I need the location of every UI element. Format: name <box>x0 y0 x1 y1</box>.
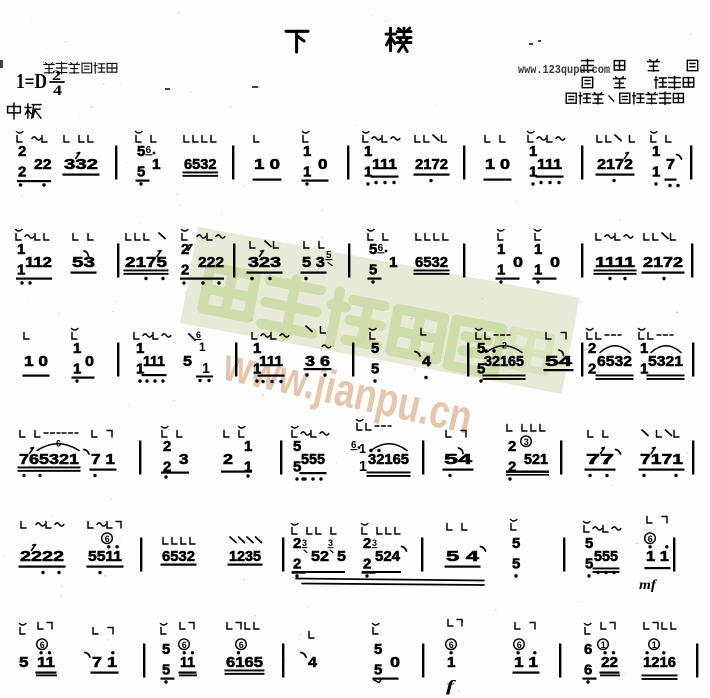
svg-text:1: 1 <box>652 640 657 650</box>
svg-text:222: 222 <box>198 254 224 271</box>
svg-text:5 4: 5 4 <box>446 548 480 565</box>
svg-text:7: 7 <box>666 156 675 173</box>
svg-text:1: 1 <box>303 143 312 160</box>
svg-text:1: 1 <box>303 164 312 181</box>
svg-text:524: 524 <box>375 548 401 565</box>
svg-text:6: 6 <box>56 439 61 449</box>
svg-text:0: 0 <box>550 254 560 271</box>
svg-text:2: 2 <box>588 340 596 357</box>
svg-text:521: 521 <box>524 451 549 468</box>
svg-text:6: 6 <box>182 640 187 650</box>
svg-text:5: 5 <box>162 641 171 658</box>
svg-text:5: 5 <box>19 654 29 671</box>
svg-text:5: 5 <box>369 241 378 258</box>
svg-text:54: 54 <box>545 353 573 370</box>
svg-text:0: 0 <box>318 156 328 173</box>
svg-text:2: 2 <box>18 164 26 181</box>
svg-text:332: 332 <box>64 156 98 173</box>
svg-text:6: 6 <box>584 641 592 658</box>
svg-text:1: 1 <box>244 459 253 476</box>
svg-text:1: 1 <box>447 654 456 671</box>
svg-text:2172: 2172 <box>643 254 683 271</box>
svg-text:6: 6 <box>517 640 522 650</box>
svg-text:555: 555 <box>594 548 619 565</box>
svg-text:3: 3 <box>524 437 529 447</box>
svg-text:1 1: 1 1 <box>646 548 670 565</box>
svg-text:1: 1 <box>497 241 506 258</box>
svg-text:1: 1 <box>244 438 253 455</box>
svg-text:4: 4 <box>308 654 318 671</box>
svg-text:5: 5 <box>512 535 521 552</box>
svg-text:2172: 2172 <box>597 156 633 173</box>
svg-text:54: 54 <box>444 451 473 468</box>
svg-text:1 0: 1 0 <box>24 353 48 370</box>
svg-text:1: 1 <box>152 156 161 173</box>
svg-text:6532: 6532 <box>162 548 195 565</box>
svg-text:6: 6 <box>648 534 653 544</box>
svg-text:6532: 6532 <box>415 254 448 271</box>
svg-text:2: 2 <box>363 556 371 573</box>
svg-text:5: 5 <box>585 535 594 552</box>
svg-text:6: 6 <box>584 662 592 679</box>
svg-text:111: 111 <box>537 156 563 173</box>
svg-text:6: 6 <box>239 640 244 650</box>
svg-text:1: 1 <box>73 361 82 378</box>
svg-text:1 1: 1 1 <box>514 654 539 671</box>
svg-text:1: 1 <box>534 262 543 279</box>
svg-text:4: 4 <box>53 83 63 99</box>
svg-text:5: 5 <box>371 340 380 357</box>
svg-text:mf: mf <box>639 578 657 593</box>
svg-text:1: 1 <box>389 254 398 271</box>
svg-text:1111: 1111 <box>595 254 636 271</box>
svg-text:1=D: 1=D <box>16 69 47 93</box>
svg-text:1: 1 <box>359 458 368 475</box>
svg-text:5511: 5511 <box>88 548 123 565</box>
svg-text:6: 6 <box>105 534 110 544</box>
svg-text:1: 1 <box>73 340 82 357</box>
svg-text:3 6: 3 6 <box>305 353 330 370</box>
svg-text:2: 2 <box>508 459 516 476</box>
svg-text:2: 2 <box>293 556 301 573</box>
svg-text:2172: 2172 <box>415 156 448 173</box>
svg-text:5: 5 <box>371 361 380 378</box>
svg-text:32165: 32165 <box>484 353 525 370</box>
svg-text:2222: 2222 <box>20 548 64 565</box>
svg-text:111: 111 <box>372 156 398 173</box>
svg-text:3: 3 <box>179 451 189 468</box>
svg-text:52: 52 <box>311 548 329 565</box>
svg-text:2: 2 <box>223 451 233 468</box>
svg-text:53: 53 <box>72 254 95 271</box>
svg-text:2175: 2175 <box>125 254 168 271</box>
svg-text:6532: 6532 <box>184 156 217 173</box>
svg-text:2: 2 <box>502 341 507 351</box>
svg-text:6: 6 <box>449 640 454 650</box>
svg-text:1: 1 <box>359 441 366 456</box>
svg-text:1235: 1235 <box>229 548 262 565</box>
svg-text:2: 2 <box>508 438 516 455</box>
svg-text:555: 555 <box>301 451 326 468</box>
svg-text:6: 6 <box>40 640 45 650</box>
svg-text:111: 111 <box>259 353 284 370</box>
svg-text:1: 1 <box>534 241 543 258</box>
svg-text:2: 2 <box>588 361 596 378</box>
svg-text:2: 2 <box>363 535 371 552</box>
svg-text:1: 1 <box>652 143 661 160</box>
svg-text:1: 1 <box>652 164 661 181</box>
svg-text:5: 5 <box>374 662 383 679</box>
svg-text:5: 5 <box>512 556 521 573</box>
svg-text:0: 0 <box>85 353 94 370</box>
svg-text:www.123qupu.com: www.123qupu.com <box>518 64 610 77</box>
svg-text:5: 5 <box>585 556 594 573</box>
svg-text:0: 0 <box>513 254 523 271</box>
svg-text:1216: 1216 <box>643 654 676 671</box>
svg-text:5 3: 5 3 <box>302 254 325 271</box>
svg-text:22: 22 <box>34 156 52 173</box>
svg-text:11: 11 <box>37 654 56 671</box>
svg-text:4: 4 <box>422 353 432 370</box>
svg-text:5: 5 <box>369 262 378 279</box>
svg-text:0: 0 <box>390 654 400 671</box>
svg-text:6: 6 <box>196 330 201 340</box>
svg-text:7 1: 7 1 <box>91 451 116 468</box>
svg-text:6165: 6165 <box>226 654 264 671</box>
svg-text:22: 22 <box>601 654 618 671</box>
svg-text:1: 1 <box>202 360 211 377</box>
svg-text:5: 5 <box>162 662 171 679</box>
svg-text:7 1: 7 1 <box>92 654 118 671</box>
svg-text:1 0: 1 0 <box>254 156 280 173</box>
svg-text:5: 5 <box>137 143 146 160</box>
svg-text:1: 1 <box>199 340 206 354</box>
svg-text:1: 1 <box>497 262 506 279</box>
svg-text:6532: 6532 <box>597 353 632 370</box>
svg-text:5: 5 <box>183 353 193 370</box>
svg-text:1: 1 <box>601 640 606 650</box>
svg-text:5: 5 <box>337 548 347 565</box>
svg-text:2: 2 <box>163 438 171 455</box>
svg-text:5: 5 <box>137 164 146 181</box>
svg-text:11: 11 <box>180 654 196 671</box>
svg-text:2: 2 <box>181 262 189 279</box>
svg-text:1 0: 1 0 <box>485 156 510 173</box>
svg-text:5321: 5321 <box>648 353 684 370</box>
svg-text:2: 2 <box>293 535 301 552</box>
svg-text:2: 2 <box>18 143 26 160</box>
svg-text:7171: 7171 <box>640 451 684 468</box>
svg-text:323: 323 <box>248 254 281 271</box>
svg-text:5: 5 <box>374 641 383 658</box>
svg-text:765321: 765321 <box>19 451 80 468</box>
svg-text:112: 112 <box>25 254 52 271</box>
svg-text:32165: 32165 <box>368 451 410 468</box>
